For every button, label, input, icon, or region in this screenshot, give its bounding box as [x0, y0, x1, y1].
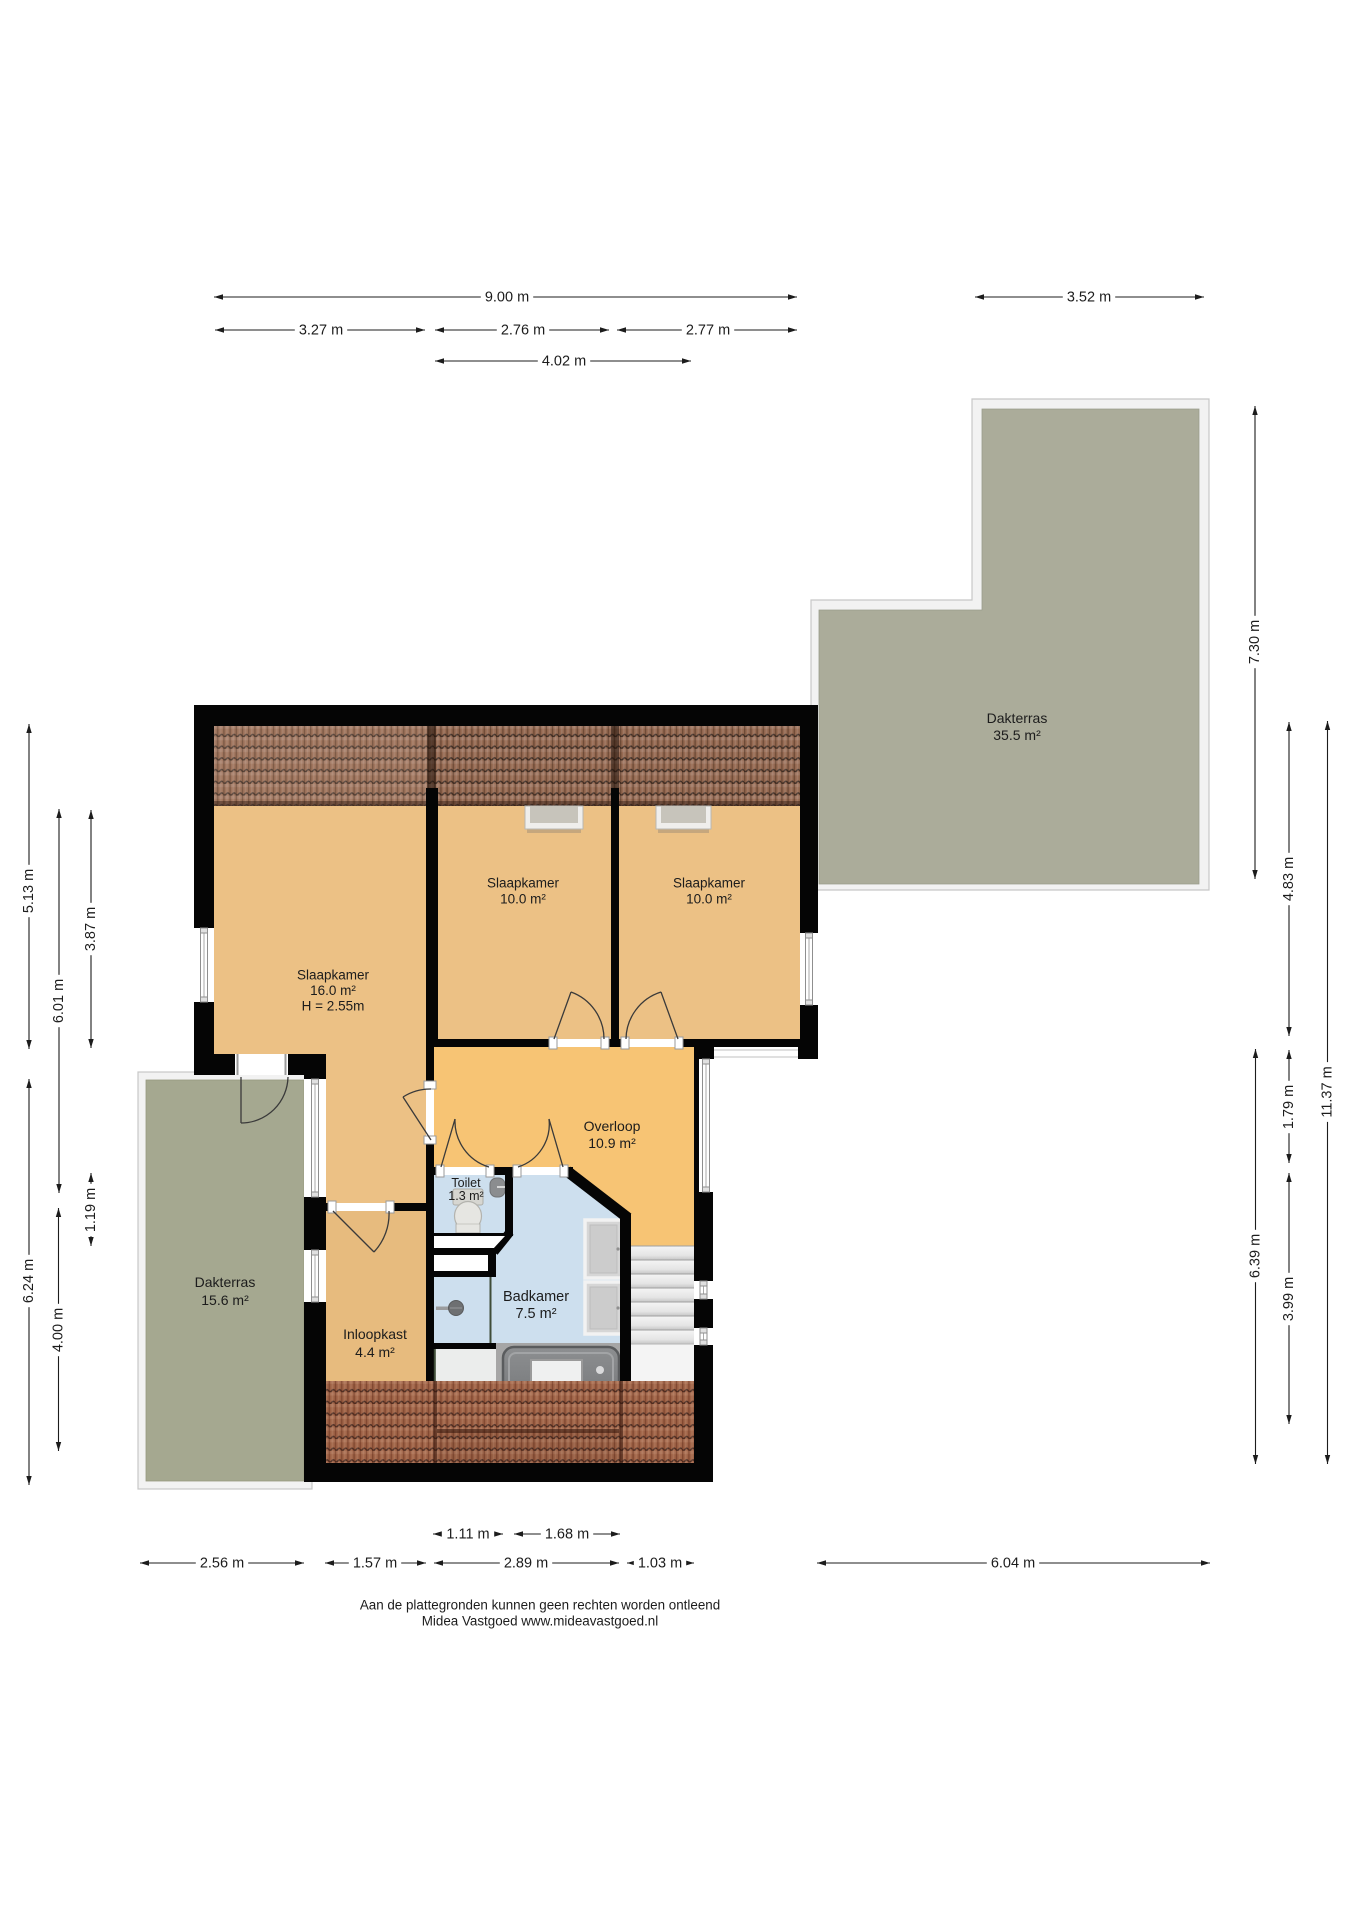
- svg-text:2.89 m: 2.89 m: [504, 1556, 548, 1572]
- svg-text:4.02 m: 4.02 m: [542, 354, 586, 370]
- svg-text:1.79 m: 1.79 m: [1281, 1085, 1297, 1129]
- svg-text:4.83 m: 4.83 m: [1281, 857, 1297, 901]
- svg-text:3.52 m: 3.52 m: [1067, 290, 1111, 306]
- svg-text:H = 2.55m: H = 2.55m: [302, 999, 365, 1014]
- svg-text:Midea Vastgoed www.mideavastgo: Midea Vastgoed www.mideavastgoed.nl: [422, 1614, 658, 1629]
- svg-text:11.37 m: 11.37 m: [1320, 1066, 1336, 1117]
- svg-text:1.19 m: 1.19 m: [83, 1188, 99, 1232]
- svg-text:Slaapkamer: Slaapkamer: [487, 876, 560, 891]
- svg-text:1.57 m: 1.57 m: [353, 1556, 397, 1572]
- svg-text:1.3 m²: 1.3 m²: [448, 1189, 483, 1203]
- svg-text:6.24 m: 6.24 m: [21, 1259, 37, 1303]
- svg-text:7.5 m²: 7.5 m²: [515, 1306, 556, 1322]
- svg-text:Inloopkast: Inloopkast: [343, 1326, 407, 1342]
- svg-text:15.6 m²: 15.6 m²: [201, 1292, 249, 1308]
- svg-text:1.03 m: 1.03 m: [638, 1556, 682, 1572]
- svg-text:10.0 m²: 10.0 m²: [686, 892, 732, 907]
- svg-text:2.77 m: 2.77 m: [686, 323, 730, 339]
- svg-text:Badkamer: Badkamer: [503, 1289, 569, 1305]
- svg-text:7.30 m: 7.30 m: [1247, 620, 1263, 664]
- svg-text:6.01 m: 6.01 m: [51, 979, 67, 1023]
- svg-text:10.9 m²: 10.9 m²: [588, 1135, 636, 1151]
- svg-text:Dakterras: Dakterras: [987, 710, 1048, 726]
- svg-text:Aan de plattegronden kunnen ge: Aan de plattegronden kunnen geen rechten…: [360, 1598, 720, 1613]
- svg-text:2.76 m: 2.76 m: [501, 323, 545, 339]
- svg-text:1.68 m: 1.68 m: [545, 1527, 589, 1543]
- svg-text:10.0 m²: 10.0 m²: [500, 892, 546, 907]
- svg-text:3.87 m: 3.87 m: [83, 907, 99, 951]
- svg-text:4.4 m²: 4.4 m²: [355, 1344, 395, 1360]
- svg-text:6.04 m: 6.04 m: [991, 1556, 1035, 1572]
- svg-text:2.56 m: 2.56 m: [200, 1556, 244, 1572]
- svg-text:6.39 m: 6.39 m: [1248, 1234, 1264, 1278]
- svg-text:35.5 m²: 35.5 m²: [993, 727, 1041, 743]
- svg-text:Overloop: Overloop: [584, 1118, 641, 1134]
- svg-text:Toilet: Toilet: [451, 1176, 481, 1190]
- svg-text:Dakterras: Dakterras: [195, 1274, 256, 1290]
- svg-text:9.00 m: 9.00 m: [485, 290, 529, 306]
- svg-text:4.00 m: 4.00 m: [51, 1308, 67, 1352]
- svg-text:1.11 m: 1.11 m: [446, 1527, 489, 1543]
- svg-text:Slaapkamer: Slaapkamer: [297, 968, 370, 983]
- svg-text:3.99 m: 3.99 m: [1281, 1277, 1297, 1321]
- svg-text:Slaapkamer: Slaapkamer: [673, 876, 746, 891]
- svg-text:3.27 m: 3.27 m: [299, 323, 343, 339]
- svg-text:16.0 m²: 16.0 m²: [310, 983, 356, 998]
- svg-text:5.13 m: 5.13 m: [21, 869, 37, 913]
